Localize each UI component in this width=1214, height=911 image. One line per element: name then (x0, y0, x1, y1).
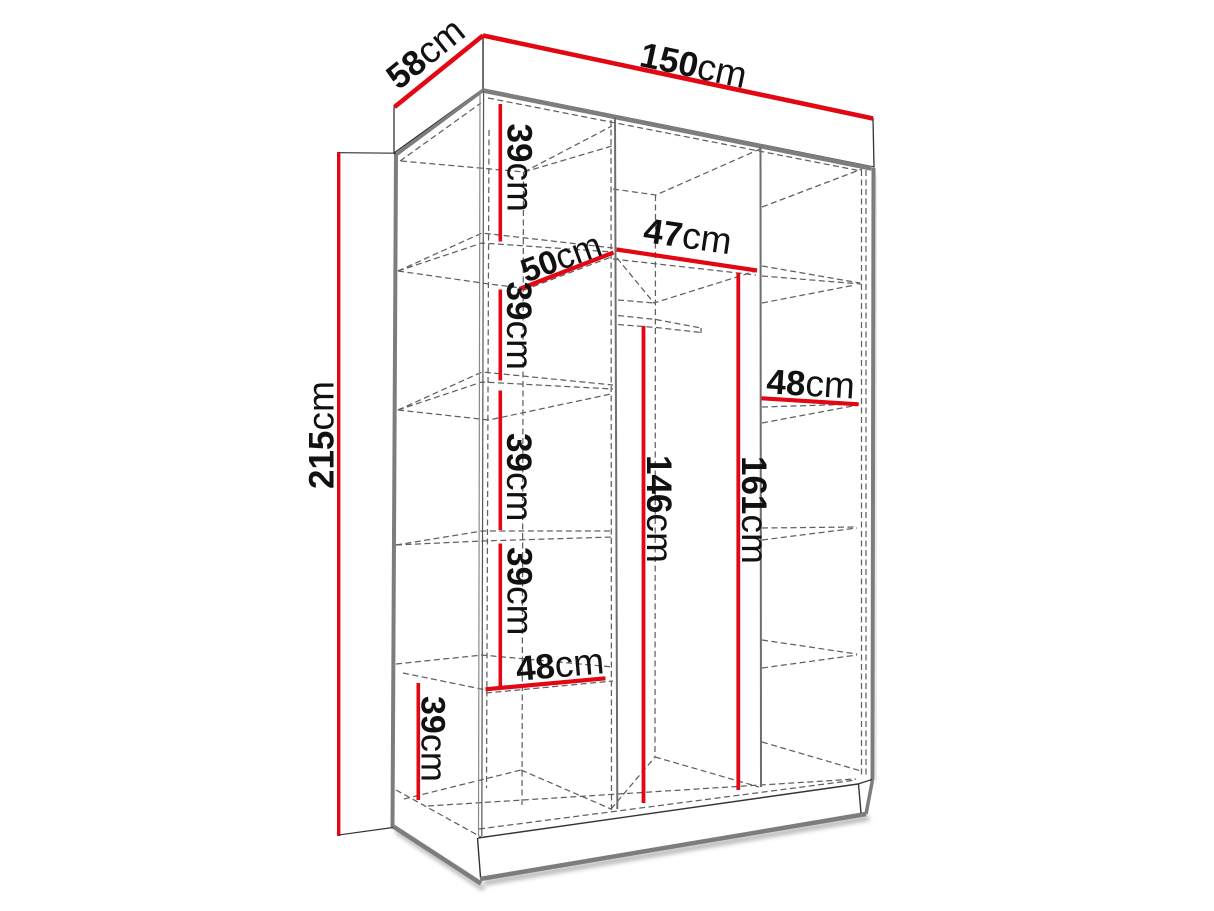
svg-text:39cm: 39cm (500, 547, 542, 635)
svg-text:48cm: 48cm (765, 359, 856, 406)
svg-text:146cm: 146cm (639, 455, 681, 563)
svg-text:161cm: 161cm (734, 456, 776, 564)
svg-text:39cm: 39cm (500, 124, 542, 212)
svg-text:39cm: 39cm (499, 282, 541, 370)
svg-text:39cm: 39cm (499, 433, 541, 521)
svg-text:39cm: 39cm (414, 696, 455, 782)
svg-text:215cm: 215cm (300, 381, 342, 489)
